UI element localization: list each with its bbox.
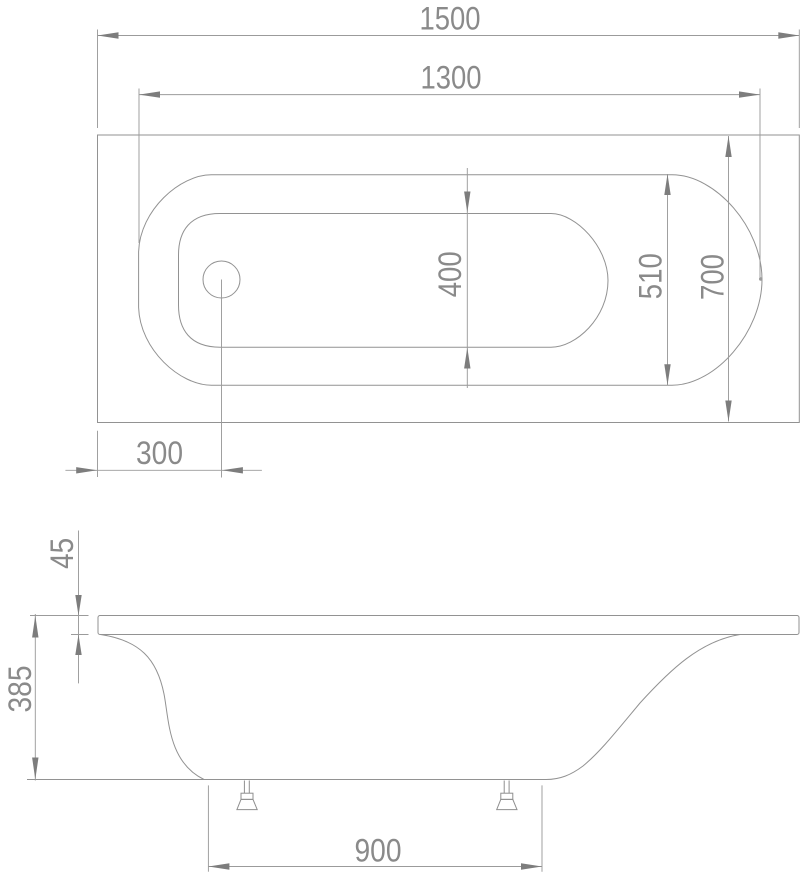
svg-text:400: 400 (432, 251, 468, 297)
svg-text:385: 385 (2, 666, 38, 713)
svg-text:300: 300 (136, 435, 183, 471)
svg-text:510: 510 (633, 253, 669, 299)
svg-text:900: 900 (355, 833, 402, 869)
svg-text:1500: 1500 (420, 0, 481, 36)
svg-text:45: 45 (44, 538, 80, 569)
svg-text:700: 700 (694, 254, 730, 300)
svg-text:1300: 1300 (421, 59, 482, 95)
